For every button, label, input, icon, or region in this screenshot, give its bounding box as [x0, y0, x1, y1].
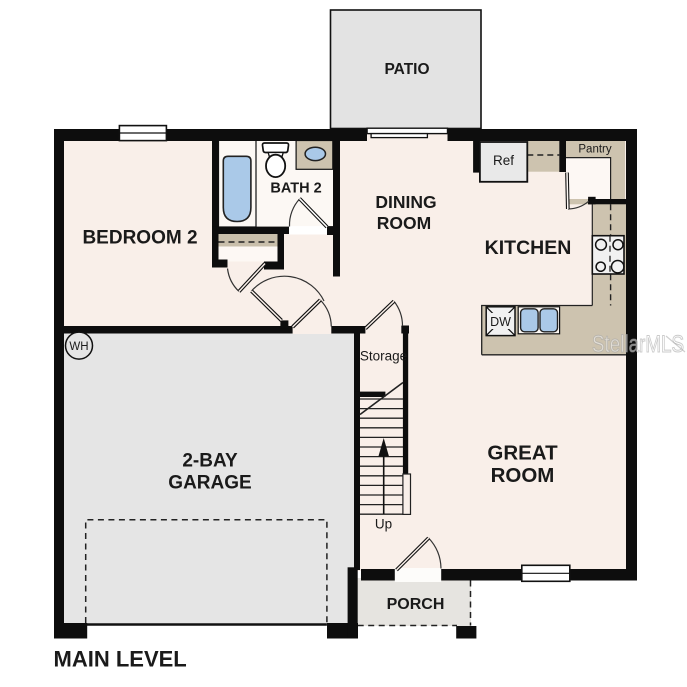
svg-text:MAIN LEVEL: MAIN LEVEL [54, 647, 187, 672]
svg-text:Up: Up [375, 517, 392, 532]
svg-text:BEDROOM 2: BEDROOM 2 [82, 228, 197, 249]
svg-text:GREAT: GREAT [487, 442, 558, 465]
svg-text:Pantry: Pantry [578, 144, 611, 156]
svg-text:PORCH: PORCH [387, 596, 445, 613]
svg-text:Ref: Ref [493, 153, 514, 168]
svg-text:KITCHEN: KITCHEN [485, 237, 572, 259]
svg-text:Storage: Storage [360, 349, 407, 364]
svg-text:ROOM: ROOM [377, 213, 431, 233]
svg-text:DINING: DINING [375, 192, 436, 212]
svg-text:WH: WH [69, 341, 88, 353]
svg-text:ROOM: ROOM [491, 464, 555, 487]
svg-text:GARAGE: GARAGE [168, 473, 251, 494]
svg-text:BATH 2: BATH 2 [270, 181, 321, 197]
svg-text:2-BAY: 2-BAY [182, 451, 238, 472]
svg-text:StellarMLS: StellarMLS [592, 331, 684, 358]
svg-text:PATIO: PATIO [384, 61, 429, 78]
svg-text:DW: DW [490, 315, 511, 329]
